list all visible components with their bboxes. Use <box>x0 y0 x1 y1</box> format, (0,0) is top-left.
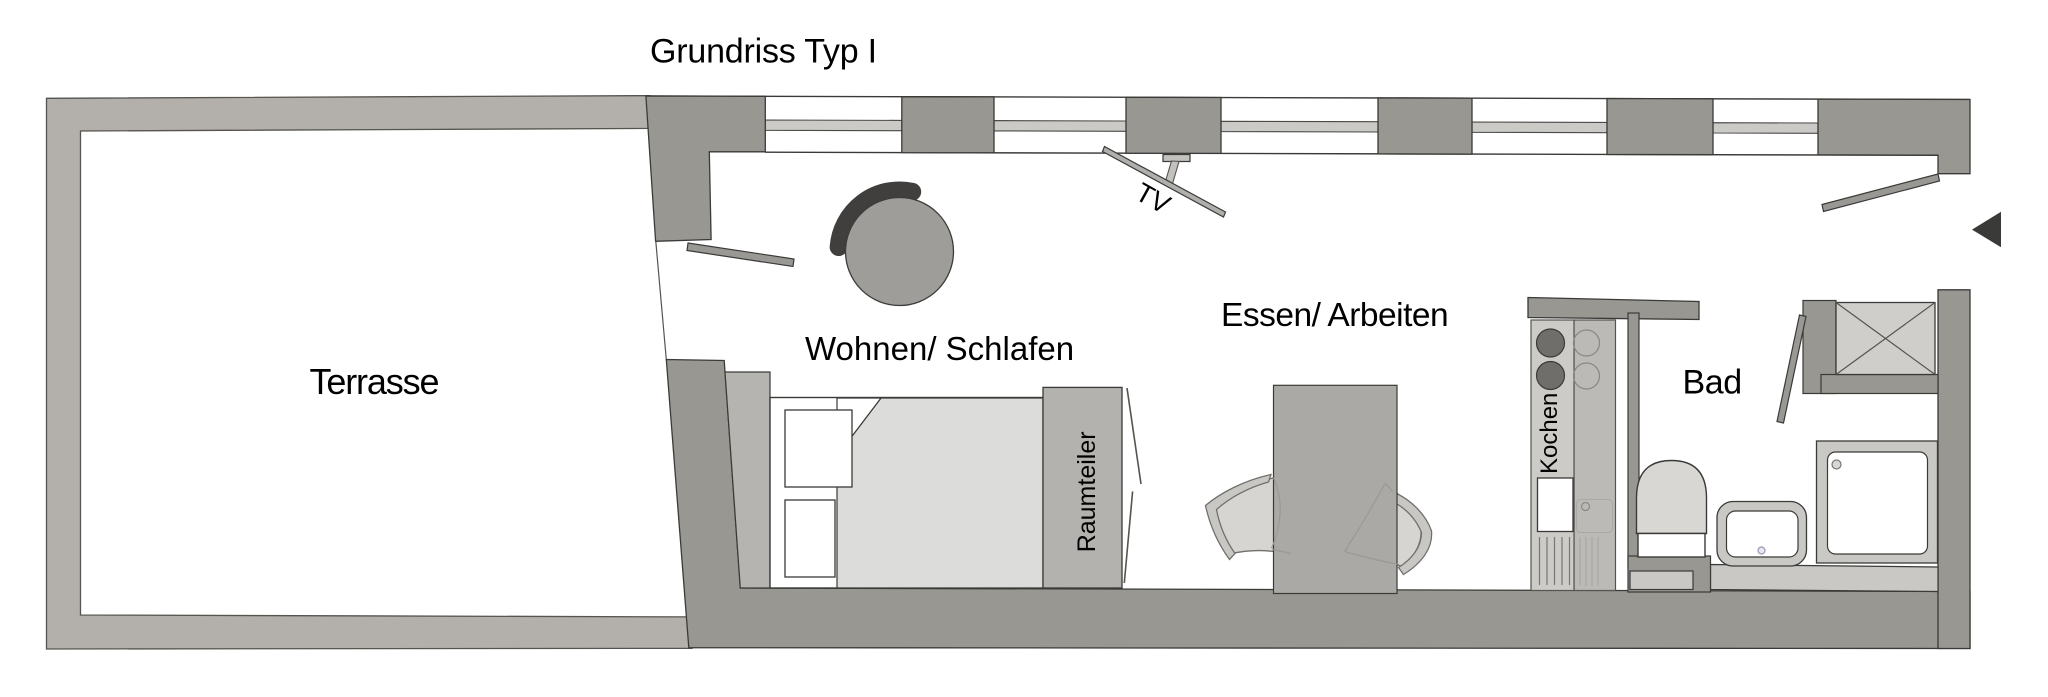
svg-text:Essen/ Arbeiten: Essen/ Arbeiten <box>1221 297 1448 334</box>
svg-text:Bad: Bad <box>1683 363 1742 401</box>
svg-text:Kochen: Kochen <box>1536 393 1563 474</box>
svg-text:Grundriss Typ I: Grundriss Typ I <box>650 32 877 70</box>
svg-text:Wohnen/ Schlafen: Wohnen/ Schlafen <box>805 330 1074 367</box>
svg-text:Terrasse: Terrasse <box>310 361 439 402</box>
svg-text:Raumteiler: Raumteiler <box>1073 431 1101 552</box>
